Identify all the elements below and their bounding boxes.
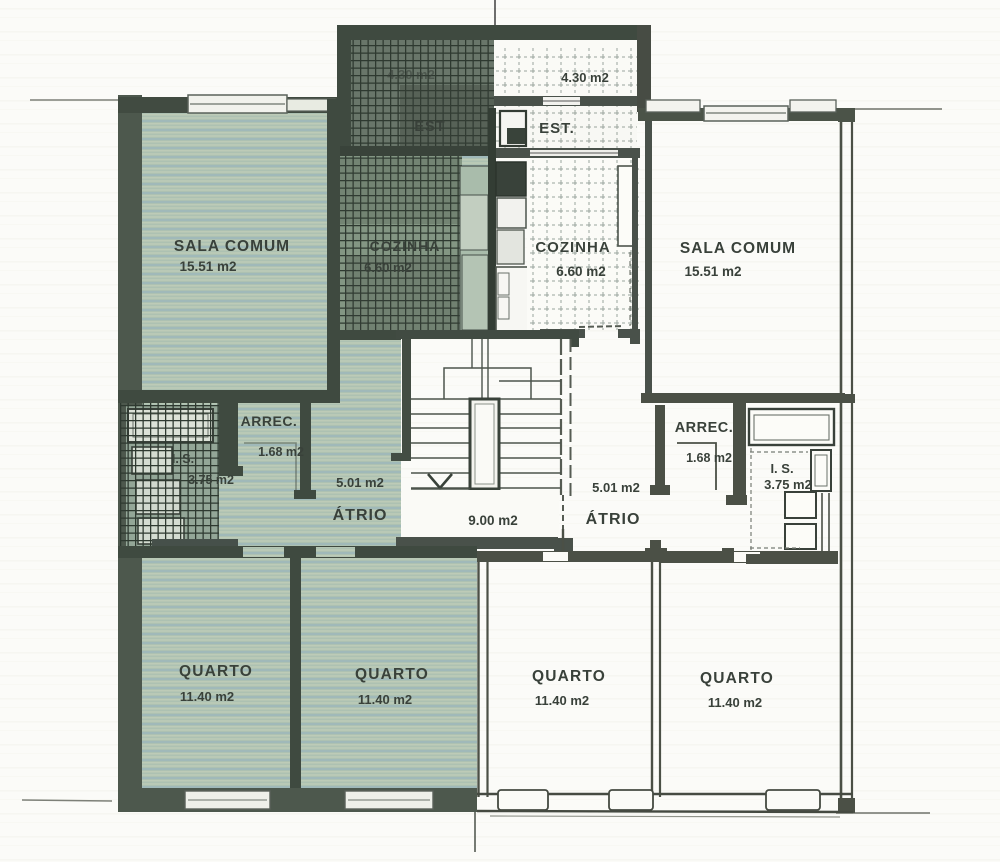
svg-text:COZINHA: COZINHA: [370, 238, 441, 254]
svg-text:3.75 m2: 3.75 m2: [188, 473, 234, 487]
svg-text:QUARTO: QUARTO: [355, 666, 429, 683]
svg-text:9.00 m2: 9.00 m2: [468, 513, 518, 528]
svg-text:I. S.: I. S.: [172, 452, 194, 466]
svg-text:SALA COMUM: SALA COMUM: [174, 238, 290, 255]
svg-text:15.51 m2: 15.51 m2: [179, 259, 236, 274]
svg-text:ÁTRIO: ÁTRIO: [333, 505, 388, 524]
svg-text:EST: EST: [414, 119, 445, 135]
svg-text:15.51 m2: 15.51 m2: [684, 264, 741, 279]
svg-text:1.68 m2: 1.68 m2: [686, 451, 732, 465]
svg-text:ARREC.: ARREC.: [241, 413, 298, 429]
svg-text:EST.: EST.: [539, 120, 575, 137]
svg-text:I. S.: I. S.: [770, 461, 793, 476]
svg-text:COZINHA: COZINHA: [535, 239, 610, 256]
svg-text:QUARTO: QUARTO: [700, 670, 774, 687]
svg-text:4.30 m2: 4.30 m2: [561, 70, 609, 85]
svg-text:ÁTRIO: ÁTRIO: [586, 509, 641, 528]
svg-text:11.40 m2: 11.40 m2: [358, 692, 412, 707]
svg-text:6.60 m2: 6.60 m2: [556, 264, 606, 279]
svg-text:6.60 m2: 6.60 m2: [364, 260, 412, 275]
svg-text:5.01 m2: 5.01 m2: [592, 480, 640, 495]
svg-text:4.30 m2: 4.30 m2: [387, 67, 435, 82]
svg-text:11.40 m2: 11.40 m2: [535, 693, 589, 708]
svg-text:ARREC.: ARREC.: [675, 420, 734, 436]
svg-text:QUARTO: QUARTO: [532, 668, 606, 685]
svg-text:SALA COMUM: SALA COMUM: [680, 240, 796, 257]
svg-text:11.40 m2: 11.40 m2: [708, 695, 762, 710]
svg-text:11.40 m2: 11.40 m2: [180, 689, 234, 704]
svg-text:1.68 m2: 1.68 m2: [258, 445, 304, 459]
svg-text:QUARTO: QUARTO: [179, 663, 253, 680]
svg-text:5.01 m2: 5.01 m2: [336, 475, 384, 490]
svg-text:3.75 m2: 3.75 m2: [764, 477, 812, 492]
